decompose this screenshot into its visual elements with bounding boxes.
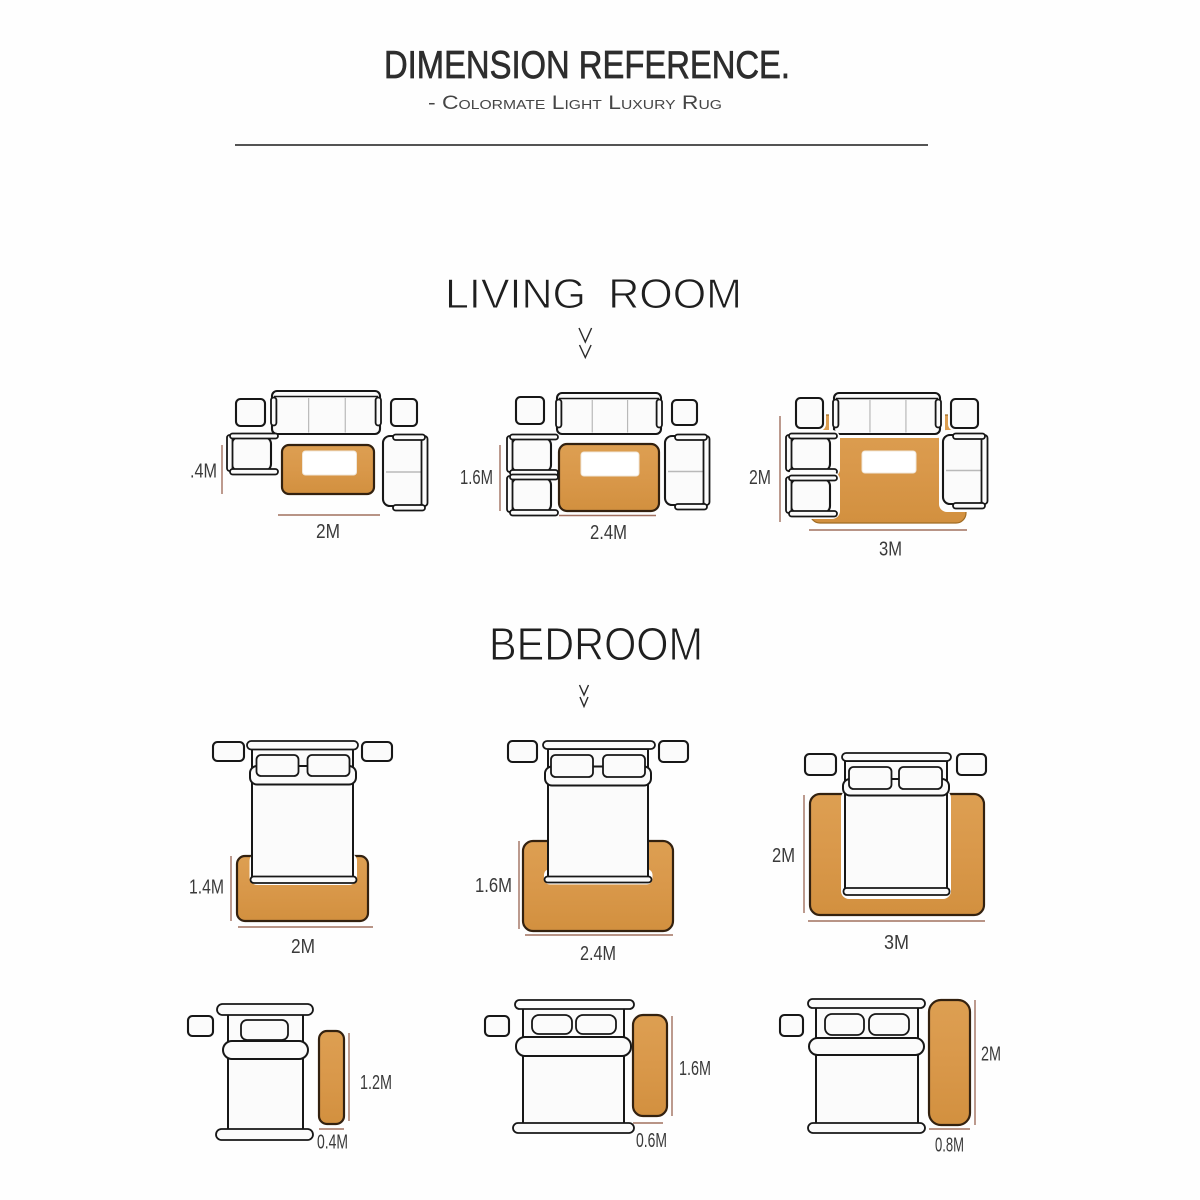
svg-text:1.6M: 1.6M [679,1057,711,1080]
svg-text:1.6M: 1.6M [460,466,493,489]
svg-text:2M: 2M [316,520,340,543]
svg-text:2M: 2M [291,935,315,958]
svg-text:3M: 3M [879,538,902,561]
svg-text:0.6M: 0.6M [636,1129,667,1152]
svg-text:.4M: .4M [190,460,217,483]
svg-text:0.4M: 0.4M [317,1131,348,1154]
svg-text:1.2M: 1.2M [360,1071,392,1094]
svg-text:BEDROOM: BEDROOM [489,618,703,670]
svg-text:DIMENSION REFERENCE.: DIMENSION REFERENCE. [384,44,790,87]
svg-text:2M: 2M [981,1043,1001,1066]
svg-text:2M: 2M [772,844,795,867]
svg-text:2.4M: 2.4M [590,521,627,544]
svg-text:2.4M: 2.4M [580,942,616,965]
svg-text:- Colormate Light Luxury Rug: - Colormate Light Luxury Rug [428,93,722,114]
svg-text:1.4M: 1.4M [189,876,224,899]
svg-text:2M: 2M [749,466,771,489]
svg-text:3M: 3M [884,931,909,954]
svg-text:1.6M: 1.6M [475,874,512,897]
svg-text:LIVING ROOM: LIVING ROOM [445,270,742,317]
svg-text:0.8M: 0.8M [935,1134,964,1157]
